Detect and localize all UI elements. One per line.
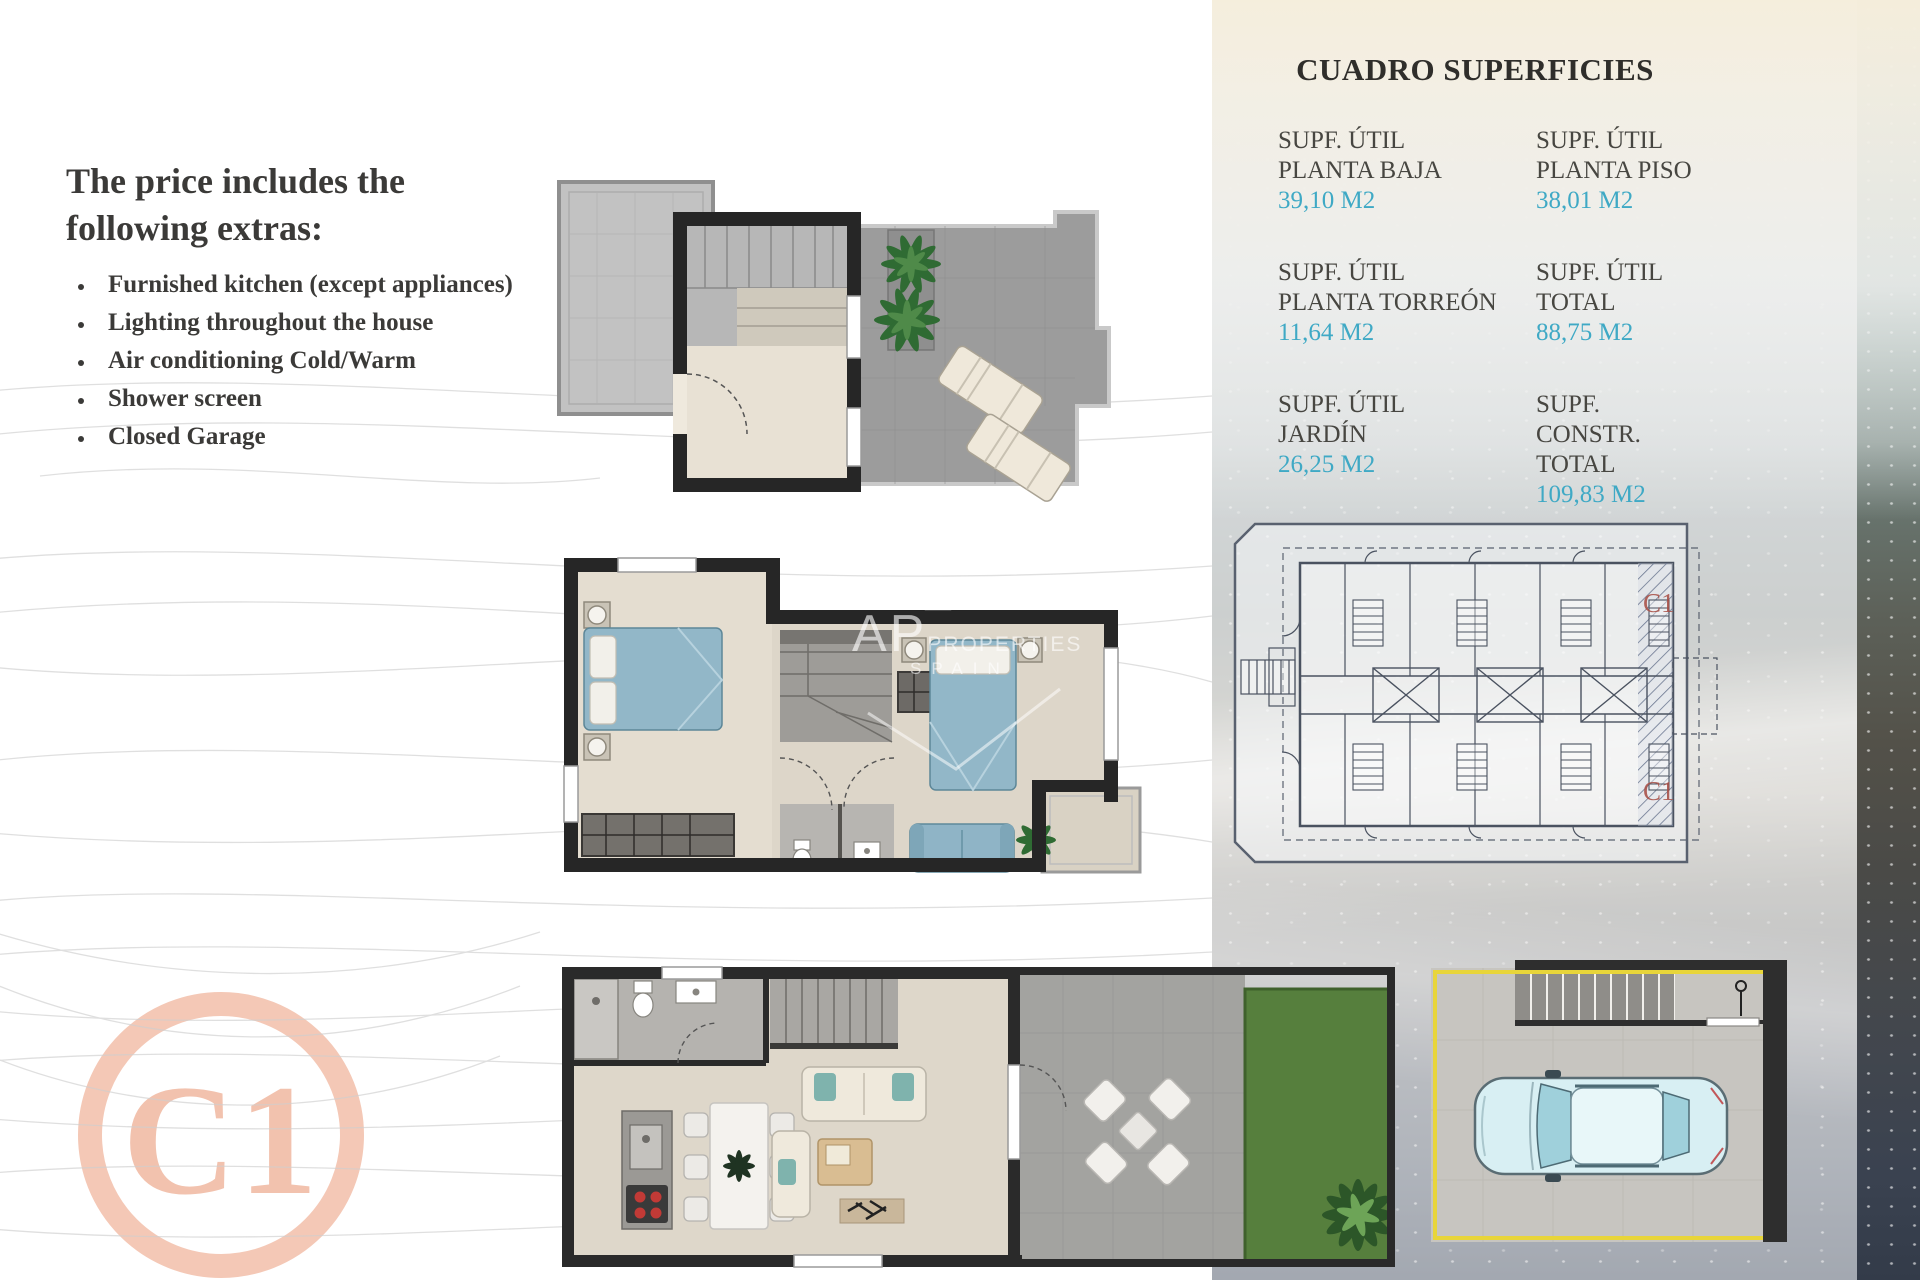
bedroom-1: [582, 602, 734, 856]
floor-plan-ground-floor: [558, 963, 1398, 1278]
intro-text-block: The price includes the following extras:…: [66, 158, 536, 456]
surface-cell-jardin: SUPF. ÚTIL JARDÍN 26,25 M2: [1278, 390, 1536, 510]
list-item: Lighting throughout the house: [96, 304, 536, 342]
watermark-swoosh: [852, 683, 1072, 783]
car-top-view: [1475, 1070, 1727, 1182]
ground-stairs: [770, 975, 898, 1049]
watermark-ap: AP: [852, 614, 927, 654]
watermark-properties: PROPERTIES: [927, 633, 1082, 657]
surfaces-table: CUADRO SUPERFICIES SUPF. ÚTIL PLANTA BAJ…: [1260, 52, 1690, 510]
ground-bathroom: [570, 975, 766, 1063]
garage-stairs: [1515, 968, 1765, 1026]
intro-heading: The price includes the following extras:: [66, 158, 536, 252]
surface-value: 109,83 M2: [1536, 480, 1708, 510]
agency-watermark: AP PROPERTIES SPAIN: [852, 578, 1082, 783]
surface-cell-util-total: SUPF. ÚTIL TOTAL 88,75 M2: [1536, 258, 1708, 348]
surfaces-title: CUADRO SUPERFICIES: [1260, 52, 1690, 88]
surface-value: 26,25 M2: [1278, 450, 1536, 480]
list-item: Closed Garage: [96, 418, 536, 456]
kitchen: [622, 1111, 672, 1229]
balcony-terrace: [1042, 788, 1140, 872]
watermark-spain: SPAIN: [910, 659, 1082, 679]
intro-bullet-list: Furnished kitchen (except appliances) Li…: [66, 266, 536, 456]
site-plan-unit-label-top: C1: [1643, 588, 1675, 618]
garden: [1245, 989, 1394, 1265]
surface-value: 88,75 M2: [1536, 318, 1708, 348]
patio: [1013, 973, 1245, 1265]
brochure-page: C1: [0, 0, 1920, 1280]
surface-cell-planta-baja: SUPF. ÚTIL PLANTA BAJA 39,10 M2: [1278, 126, 1536, 216]
surface-cell-planta-torreon: SUPF. ÚTIL PLANTA TORREÓN 11,64 M2: [1278, 258, 1536, 348]
site-key-plan: C1 C1: [1225, 508, 1725, 888]
surface-value: 38,01 M2: [1536, 186, 1708, 216]
surface-cell-planta-piso: SUPF. ÚTIL PLANTA PISO 38,01 M2: [1536, 126, 1708, 216]
list-item: Furnished kitchen (except appliances): [96, 266, 536, 304]
garage-plan: [1423, 960, 1819, 1256]
surface-cell-constr-total: SUPF. CONSTR. TOTAL 109,83 M2: [1536, 390, 1708, 510]
floor-plan-torreon: [555, 168, 1117, 503]
surface-value: 11,64 M2: [1278, 318, 1536, 348]
surfaces-grid: SUPF. ÚTIL PLANTA BAJA 39,10 M2 SUPF. ÚT…: [1278, 126, 1690, 510]
list-item: Air conditioning Cold/Warm: [96, 342, 536, 380]
surface-value: 39,10 M2: [1278, 186, 1536, 216]
site-plan-unit-label-bottom: C1: [1643, 776, 1675, 806]
torreon-room: [673, 212, 861, 492]
list-item: Shower screen: [96, 380, 536, 418]
